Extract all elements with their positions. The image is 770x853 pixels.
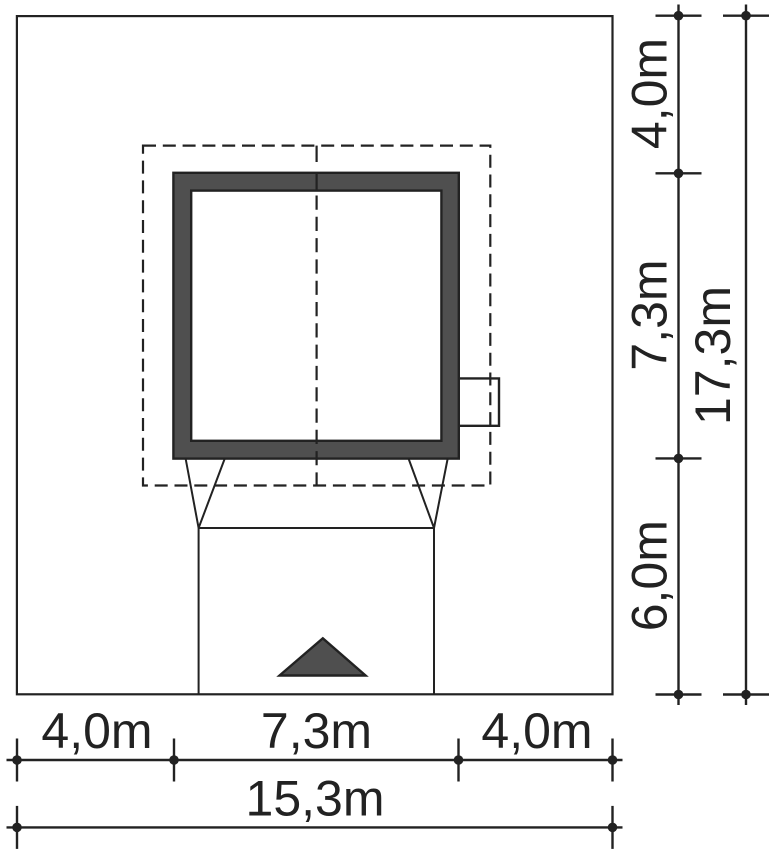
svg-text:17,3m: 17,3m — [685, 286, 741, 425]
svg-text:4,0m: 4,0m — [622, 38, 678, 149]
svg-text:15,3m: 15,3m — [246, 771, 385, 827]
svg-text:4,0m: 4,0m — [41, 703, 152, 759]
svg-text:6,0m: 6,0m — [622, 520, 678, 631]
svg-text:7,3m: 7,3m — [261, 703, 372, 759]
svg-text:7,3m: 7,3m — [622, 259, 678, 370]
svg-text:4,0m: 4,0m — [481, 703, 592, 759]
